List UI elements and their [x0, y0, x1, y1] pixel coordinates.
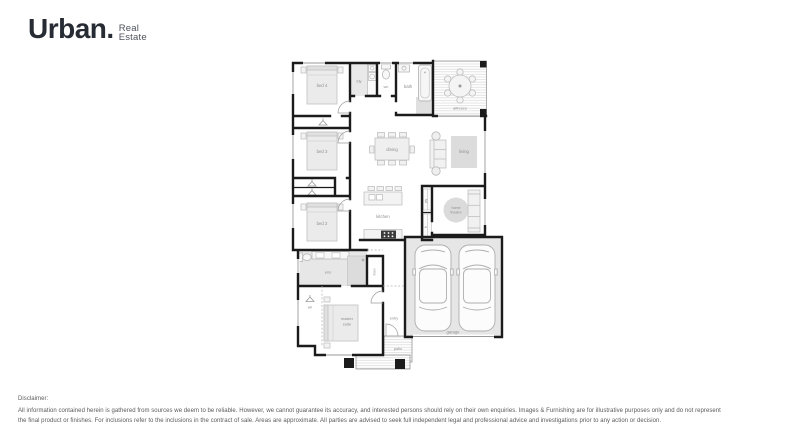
- room-label-dining: dining: [386, 147, 398, 152]
- plant-icon: [432, 132, 440, 140]
- plant-icon: [432, 167, 440, 175]
- hanger-icon: [319, 119, 327, 126]
- room-label-bed2: bed 2: [317, 221, 328, 226]
- disclaimer-line2: the final product or finishes. For inclu…: [18, 416, 782, 427]
- brand-tagline-line2: Estate: [119, 32, 147, 43]
- bathtub-icon: [419, 65, 432, 101]
- toilet-icon: [382, 65, 391, 80]
- room-label-alfresco: alfresco: [453, 106, 468, 111]
- car-icon: [413, 245, 453, 331]
- room-label-ldy: ldy: [356, 79, 361, 84]
- cooktop-icon: [364, 230, 402, 240]
- room-label-ens: ens: [325, 270, 331, 275]
- hanger-icon: [306, 295, 314, 302]
- room-label-home-theatre-1: home: [452, 206, 461, 210]
- room-label-living: living: [459, 149, 469, 154]
- floor-plan-svg: bed 4 ldy wc bath alfresco bed 3 dining …: [280, 53, 520, 398]
- laundry-icons: [368, 64, 377, 95]
- sofa-icon: [430, 140, 446, 168]
- room-label-master-1: master: [341, 316, 354, 321]
- hanger-icon: [308, 189, 316, 196]
- basin-icon: [399, 65, 410, 73]
- disclaimer-line1: All information contained herein is gath…: [18, 406, 782, 417]
- room-label-garage: garage: [446, 330, 460, 335]
- room-label-bath: bath: [404, 84, 413, 89]
- room-label-kitchen: kitchen: [376, 214, 390, 219]
- kitchen-island-icon: [364, 187, 402, 206]
- brand-logo: Urban. Real Estate: [28, 13, 147, 45]
- room-label-patio: patio: [394, 347, 402, 351]
- room-label-entry: entry: [390, 317, 399, 321]
- room-label-wc: wc: [384, 84, 389, 89]
- disclaimer: Disclaimer: All information contained he…: [18, 394, 782, 427]
- brand-tagline: Real Estate: [119, 24, 147, 42]
- theatre-sofa-icon: [468, 190, 480, 232]
- room-label-pty: pty: [424, 198, 428, 203]
- hanger-icon: [308, 180, 316, 187]
- brand-name: Urban.: [28, 13, 114, 45]
- pantry-shelves: [424, 189, 432, 238]
- floor-plan: bed 4 ldy wc bath alfresco bed 3 dining …: [280, 53, 520, 398]
- car-icon: [457, 245, 497, 331]
- room-label-bed4: bed 4: [317, 83, 328, 88]
- room-label-bed3: bed 3: [317, 149, 328, 154]
- room-label-master-2: suite: [343, 322, 352, 327]
- room-label-home-theatre-2: theatre: [450, 211, 461, 215]
- disclaimer-title: Disclaimer:: [18, 394, 782, 405]
- room-label-linen: linen: [373, 268, 377, 275]
- room-label-wir: wir: [308, 306, 313, 310]
- master-bed-icon: [324, 297, 358, 348]
